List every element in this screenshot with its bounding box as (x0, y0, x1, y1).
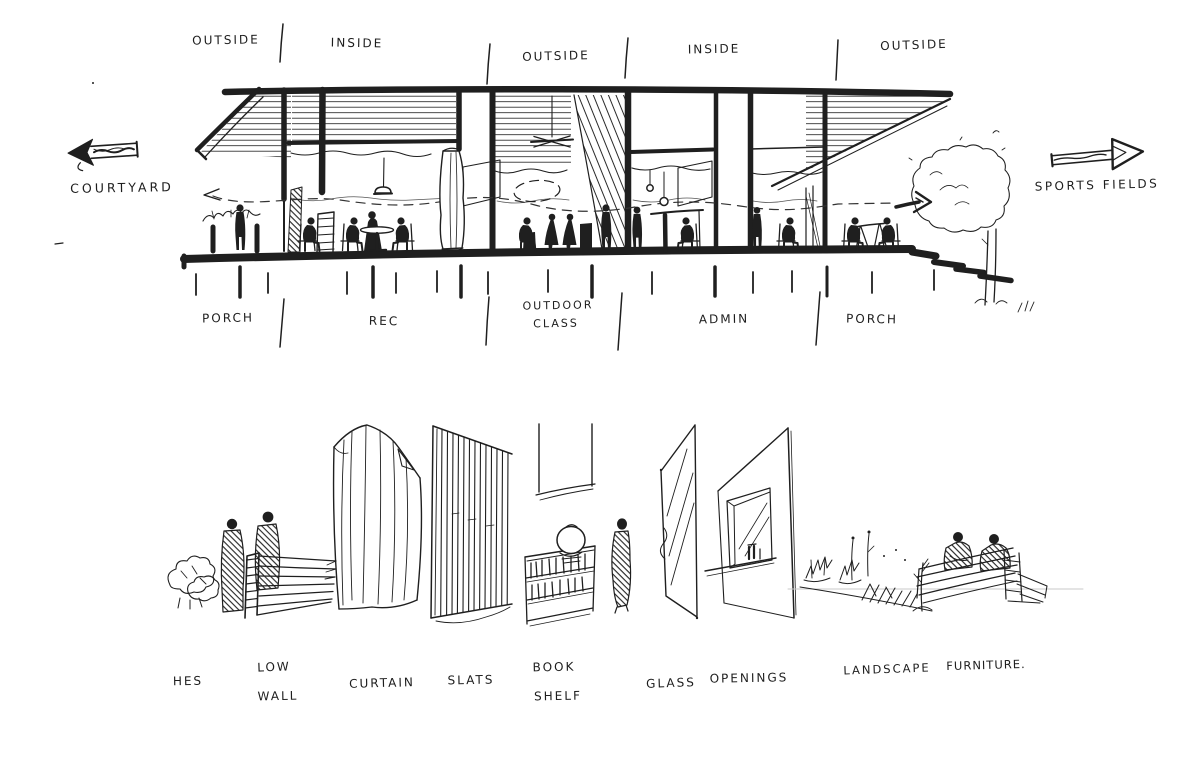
zone-label-outside-1: OUTSIDE (192, 32, 260, 47)
vignette-glass (660, 425, 698, 619)
roof (197, 89, 951, 203)
legend-label-slats: SLATS (447, 673, 494, 688)
zone-label-inside-1: INSIDE (331, 36, 384, 51)
vignette-bookshelf (525, 424, 595, 626)
trees (909, 131, 1034, 312)
legend-label-low: LOW (257, 659, 291, 674)
legend-label-hedges: HES (173, 674, 203, 689)
courtyard-label: COURTYARD (70, 179, 174, 196)
podium (580, 223, 592, 251)
vignette-low-wall (221, 512, 336, 618)
pendant-lamps (647, 170, 668, 206)
vignette-openings (705, 428, 796, 618)
sketch-page: OUTSIDE INSIDE OUTSIDE INSIDE OUTSIDE CO… (0, 0, 1200, 780)
room-label-porch-right: PORCH (846, 312, 898, 327)
room-label-admin: ADMIN (699, 312, 750, 327)
vignette-furniture (917, 532, 1047, 603)
planter (203, 210, 260, 251)
vignette-figure (612, 518, 631, 613)
room-label-porch-left: PORCH (202, 311, 254, 326)
grid-ticks (196, 266, 934, 297)
room-label-rec: REC (369, 314, 400, 329)
section-curtain (440, 148, 464, 251)
legend-label-glass: GLASS (646, 675, 696, 691)
vignette-landscape (788, 531, 1083, 612)
pendant-lamp (374, 158, 392, 194)
admin-desk (651, 210, 703, 250)
door-frame (806, 186, 820, 250)
vignette-hedges (168, 556, 219, 609)
legend-label-shelf: SHELF (534, 689, 582, 704)
legend-label-openings: OPENINGS (710, 670, 789, 685)
legend-label-book: BOOK (532, 660, 575, 675)
legend-label-curtain: CURTAIN (349, 675, 415, 691)
dashed-arrow-left-icon (204, 189, 220, 200)
room-label-outdoor: OUTDOOR (522, 298, 593, 312)
room-label-class: CLASS (533, 317, 579, 331)
courtyard-arrow-icon (68, 138, 139, 171)
zone-label-inside-2: INSIDE (688, 42, 741, 57)
vignette-curtain (334, 425, 422, 609)
vignette-slats (431, 426, 512, 623)
whiteboard-oval (513, 179, 561, 204)
zone-label-outside-2: OUTSIDE (522, 48, 590, 64)
legend-label-wall: WALL (257, 689, 298, 704)
zone-label-outside-3: OUTSIDE (880, 37, 948, 53)
legend-label-furniture: FURNITURE. (946, 657, 1026, 673)
people (235, 204, 900, 251)
sports-fields-arrow-icon (1051, 138, 1144, 173)
